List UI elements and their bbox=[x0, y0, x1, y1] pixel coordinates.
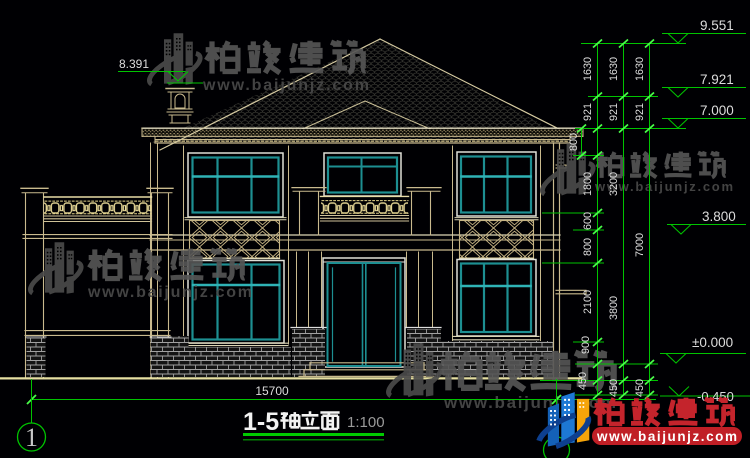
svg-text:921: 921 bbox=[582, 103, 594, 121]
svg-text:450: 450 bbox=[577, 372, 589, 390]
svg-text:921: 921 bbox=[608, 103, 620, 121]
svg-text:2100: 2100 bbox=[582, 290, 594, 314]
svg-text:3.800: 3.800 bbox=[702, 209, 736, 224]
svg-text:1-5: 1-5 bbox=[243, 408, 279, 436]
svg-text:900: 900 bbox=[580, 336, 592, 354]
svg-text:600: 600 bbox=[582, 212, 594, 230]
svg-text:1630: 1630 bbox=[634, 57, 646, 81]
svg-text:3200: 3200 bbox=[608, 172, 620, 196]
svg-text:7000: 7000 bbox=[634, 233, 646, 257]
svg-text:1800: 1800 bbox=[582, 172, 594, 196]
svg-text:3800: 3800 bbox=[608, 296, 620, 320]
svg-text:7.000: 7.000 bbox=[700, 103, 734, 118]
svg-text:-0.450: -0.450 bbox=[697, 389, 734, 404]
svg-text:800: 800 bbox=[582, 238, 594, 256]
svg-text:921: 921 bbox=[634, 103, 646, 121]
svg-text:1630: 1630 bbox=[582, 57, 594, 81]
svg-text:1: 1 bbox=[25, 423, 38, 452]
svg-text:7.921: 7.921 bbox=[700, 72, 734, 87]
svg-text:1:100: 1:100 bbox=[347, 414, 385, 431]
svg-text:450: 450 bbox=[608, 379, 620, 397]
svg-text:9.551: 9.551 bbox=[700, 18, 734, 33]
svg-text:±0.000: ±0.000 bbox=[692, 335, 733, 350]
svg-text:800: 800 bbox=[568, 133, 580, 151]
svg-text:450: 450 bbox=[634, 379, 646, 397]
svg-text:8.391: 8.391 bbox=[119, 57, 149, 71]
svg-text:15700: 15700 bbox=[255, 384, 289, 398]
svg-text:1630: 1630 bbox=[608, 57, 620, 81]
